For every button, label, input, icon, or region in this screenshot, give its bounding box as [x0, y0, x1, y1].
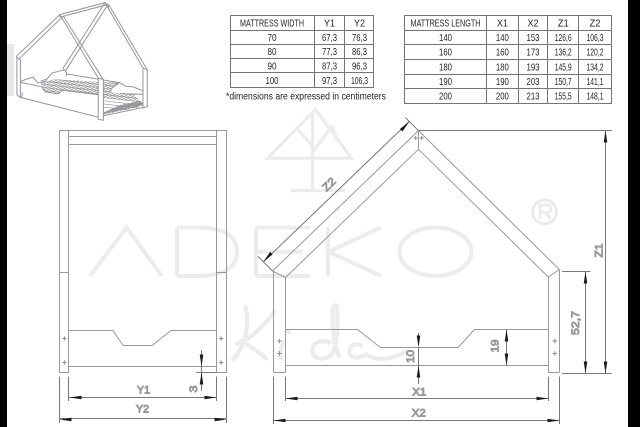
svg-text:106,3: 106,3: [587, 32, 604, 44]
svg-text:200: 200: [496, 91, 509, 103]
svg-text:148,1: 148,1: [587, 91, 604, 103]
svg-text:180: 180: [496, 61, 509, 73]
svg-text:145,9: 145,9: [555, 61, 572, 73]
svg-text:160: 160: [496, 47, 509, 59]
svg-text:X1: X1: [412, 386, 426, 398]
svg-text:10: 10: [405, 350, 417, 363]
svg-text:200: 200: [439, 91, 452, 103]
svg-text:140: 140: [496, 32, 509, 44]
svg-text:203: 203: [527, 76, 540, 88]
svg-text:126,6: 126,6: [555, 32, 572, 44]
svg-text:X2: X2: [528, 18, 539, 30]
svg-text:67,3: 67,3: [322, 32, 337, 44]
svg-text:86,3: 86,3: [352, 46, 367, 58]
svg-text:X2: X2: [412, 408, 426, 420]
svg-text:70: 70: [268, 32, 277, 44]
svg-text:120,2: 120,2: [587, 47, 604, 59]
svg-text:190: 190: [439, 76, 452, 88]
svg-text:134,2: 134,2: [587, 61, 604, 73]
svg-text:*dimensions are expressed in c: *dimensions are expressed in centimeters: [226, 92, 386, 103]
svg-text:3: 3: [188, 386, 200, 393]
svg-text:155,5: 155,5: [555, 91, 572, 103]
svg-text:76,3: 76,3: [352, 32, 367, 44]
svg-text:160: 160: [439, 47, 452, 59]
svg-text:87,3: 87,3: [322, 61, 337, 73]
svg-text:90: 90: [268, 61, 277, 73]
svg-text:213: 213: [527, 91, 540, 103]
svg-text:77,3: 77,3: [322, 46, 337, 58]
svg-text:Y1: Y1: [324, 17, 335, 29]
svg-text:MATTRESS LENGTH: MATTRESS LENGTH: [411, 18, 481, 30]
svg-text:Y2: Y2: [354, 17, 365, 29]
svg-text:Y1: Y1: [137, 384, 150, 396]
svg-text:MATTRESS WIDTH: MATTRESS WIDTH: [240, 17, 304, 29]
svg-text:106,3: 106,3: [351, 75, 368, 87]
svg-text:100: 100: [266, 75, 279, 87]
svg-text:Z1: Z1: [594, 244, 606, 258]
svg-text:Y2: Y2: [136, 403, 149, 415]
svg-text:X1: X1: [497, 18, 508, 30]
svg-text:136,2: 136,2: [555, 47, 572, 59]
svg-text:193: 193: [527, 61, 540, 73]
svg-text:97,3: 97,3: [322, 75, 337, 87]
svg-text:140: 140: [439, 32, 452, 44]
svg-text:Z1: Z1: [558, 18, 569, 30]
svg-text:173: 173: [527, 47, 540, 59]
svg-text:Z2: Z2: [590, 18, 601, 30]
svg-text:153: 153: [527, 32, 540, 44]
svg-text:96,3: 96,3: [352, 61, 367, 73]
svg-text:80: 80: [268, 46, 277, 58]
svg-text:19: 19: [490, 340, 502, 353]
svg-text:141,1: 141,1: [587, 76, 604, 88]
svg-text:150,7: 150,7: [555, 76, 572, 88]
svg-text:52,7: 52,7: [570, 311, 582, 335]
svg-text:180: 180: [439, 61, 452, 73]
svg-text:190: 190: [496, 76, 509, 88]
